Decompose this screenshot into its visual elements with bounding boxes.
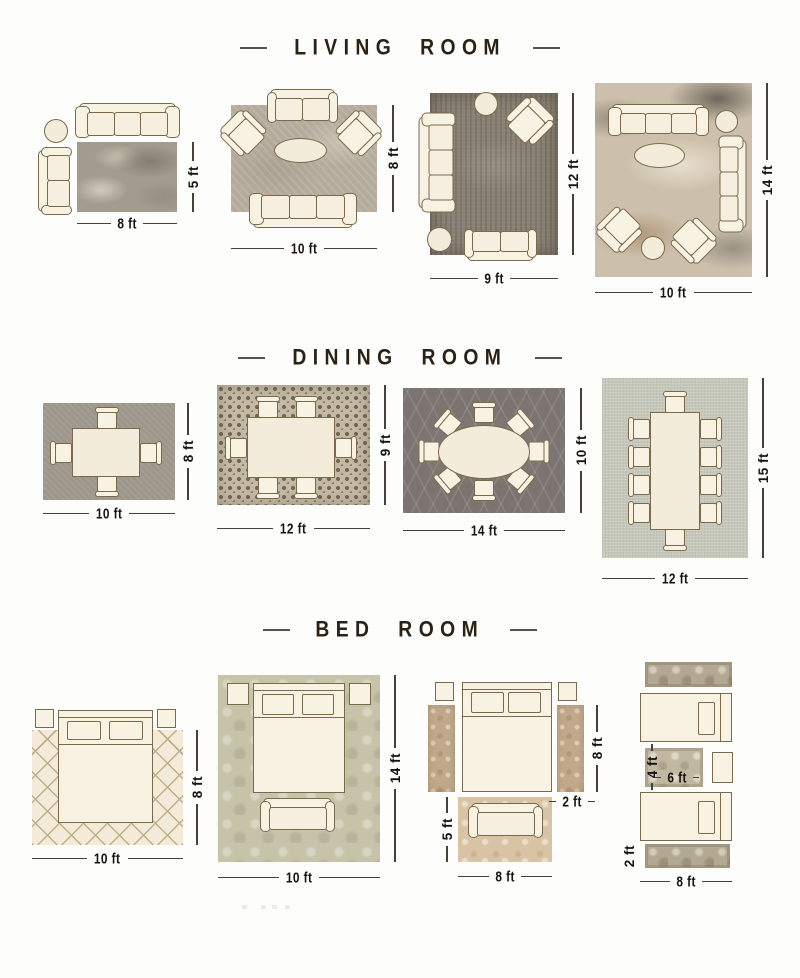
dimension-width: 9 ft [430,271,558,286]
dimension-height: 5 ft [184,142,202,212]
dining-chair [700,417,722,441]
dimension-label: 10 ft [291,240,318,256]
dining-chair [700,445,722,469]
oval-dining-table [438,425,530,479]
dimension-width: 10 ft [231,241,377,256]
dining-chair [140,441,162,465]
dining-chair [628,417,650,441]
dining-chair [50,441,72,465]
section-title-text: LIVING ROOM [294,35,506,60]
dimension-label: 10 ft [574,435,589,465]
dining-chair [472,480,496,501]
dimension-label: 2 ft [562,793,582,809]
title-rule-right [533,47,560,49]
dimension-height: 9 ft [376,385,394,505]
dimension-label: 8 ft [190,776,205,798]
nightstand [712,752,733,783]
dimension-label: 9 ft [378,434,393,456]
section-title-text: DINING ROOM [293,345,508,370]
nightstand [435,682,454,701]
runner-rug-top [645,662,732,687]
sofa [608,104,709,136]
bench [468,803,543,838]
dimension-width: 10 ft [43,506,175,521]
title-rule-left [263,629,290,631]
bed [462,682,552,792]
dimension-label: 8 ft [386,147,401,169]
round-side-table [427,227,452,252]
oval-coffee-table [634,143,685,168]
dining-chair [256,396,280,418]
round-side-table [715,110,738,133]
round-side-table [474,92,498,116]
dimension-height: 14 ft [386,675,404,862]
dining-chair [225,436,247,460]
dimension-width: 14 ft [403,523,565,538]
nightstand [35,709,54,728]
dimension-runner-width: 8 ft [640,874,732,889]
dimension-label: 14 ft [760,165,775,195]
dining-chair [628,445,650,469]
dimension-label: 8 ft [181,440,196,462]
dimension-label: 9 ft [484,270,504,286]
dimension-height: 14 ft [758,83,776,277]
dining-chair [294,396,318,418]
sofa [249,193,357,228]
dining-table [247,417,335,478]
dimension-runner-height: 2 ft [620,840,638,872]
dimension-height: 8 ft [384,105,402,212]
dining-chair [700,473,722,497]
dimension-label: 12 ft [280,520,307,536]
runner-rug-right [557,705,584,792]
dining-chair [294,477,318,499]
dining-chair [95,407,119,429]
dimension-label: 10 ft [94,850,121,866]
loveseat [38,147,72,215]
round-side-table [641,236,665,260]
dining-chair [700,501,722,525]
dimension-label: 12 ft [662,570,689,586]
nightstand [227,683,249,705]
sofa [719,136,747,233]
section-title-living-room: LIVING ROOM [0,36,800,60]
dining-chair [256,477,280,499]
sofa [267,89,338,123]
dimension-width: 12 ft [217,521,370,536]
round-side-table [44,119,68,143]
nightstand [558,682,577,701]
dining-chair [663,391,687,413]
dimension-runner-height: 8 ft [588,705,606,792]
dining-table [72,428,140,477]
dimension-label: 8 ft [117,215,137,231]
title-rule-left [238,357,265,359]
dining-chair [628,473,650,497]
dimension-width: 10 ft [32,851,183,866]
dimension-label: 5 ft [440,818,455,840]
dimension-label: 10 ft [286,869,313,885]
section-title-dining-room: DINING ROOM [0,346,800,370]
dimension-accent-width: 8 ft [458,869,552,884]
dimension-width: 10 ft [218,870,380,885]
dimension-accent-width: 6 ft [655,770,699,785]
dimension-height: 10 ft [572,388,590,513]
dimension-label: 10 ft [660,284,687,300]
dimension-width: 10 ft [595,285,752,300]
dimension-width: 8 ft [77,216,177,231]
bed [253,683,345,793]
dimension-width: 12 ft [602,571,748,586]
dimension-label: 6 ft [667,769,687,785]
nightstand [349,683,371,705]
rug-living-8x5 [77,142,177,212]
dimension-label: 8 ft [590,737,605,759]
dimension-label: 8 ft [676,873,696,889]
dimension-label: 5 ft [186,166,201,188]
dimension-label: 8 ft [495,868,515,884]
section-title-bed-room: BED ROOM [0,618,800,642]
oval-coffee-table [274,138,327,163]
section-title-text: BED ROOM [316,617,485,642]
dimension-height: 8 ft [188,730,206,845]
dining-chair [663,529,687,551]
title-rule-right [535,357,562,359]
dimension-label: 10 ft [96,505,123,521]
runner-rug-bottom [645,844,730,868]
dimension-height: 15 ft [754,378,772,558]
dimension-label: 14 ft [471,522,498,538]
dimension-height: 8 ft [179,403,197,500]
dining-chair [419,440,440,464]
dining-chair [529,440,550,464]
title-rule-left [240,47,267,49]
dimension-label: 2 ft [622,845,637,867]
bed [58,710,153,823]
sofa [419,113,456,213]
dining-chair [628,501,650,525]
dining-chair [95,475,119,497]
dimension-label: 12 ft [566,159,581,189]
dimension-height: 12 ft [564,93,582,255]
dimension-label: 14 ft [388,753,403,783]
dimension-label: 15 ft [756,453,771,483]
title-rule-right [510,629,537,631]
nightstand [157,709,176,728]
bench [260,798,335,832]
watermark [242,905,290,909]
dining-chair [335,436,357,460]
dimension-accent-height: 5 ft [438,797,456,862]
sofa [75,103,180,138]
twin-bed [640,693,732,742]
dimension-runner-width: 2 ft [549,794,595,809]
dining-table [650,412,700,530]
twin-bed [640,792,732,841]
rug-size-guide: LIVING ROOM 5 ft 8 ft 8 ft 10 ft [0,0,800,978]
dining-chair [472,402,496,423]
loveseat [464,229,537,261]
runner-rug-left [428,705,455,792]
